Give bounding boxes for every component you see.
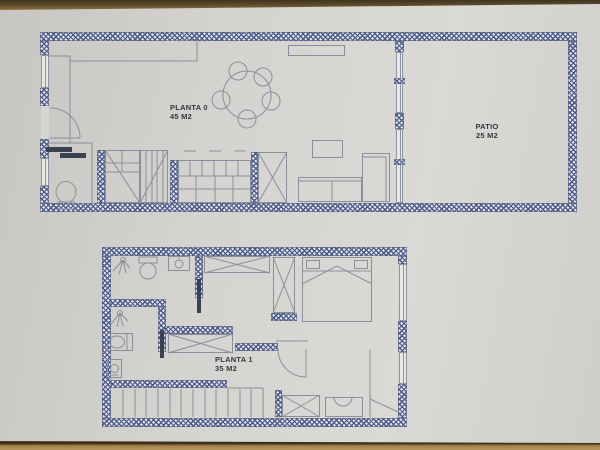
bedroom-door-icon [276,341,308,377]
window [41,158,49,186]
sofa-chaise [362,153,390,202]
pocket-door [160,330,164,358]
kitchen-wall-stub [251,152,258,203]
kitchen-wall-stub [170,160,178,203]
wall-left-seg [40,88,49,106]
wall-right-seg [398,384,407,418]
patio-name: PATIO [458,122,516,131]
bathtub [107,333,133,351]
bathroom-sliding-door [46,147,72,152]
wall-bottom [102,418,407,427]
wardrobe-x [168,334,233,353]
bathroom-sliding-door [60,153,86,158]
coffee-table [312,140,343,158]
planta0-area: 45 M2 [170,112,208,121]
washbasin-unit [168,256,190,271]
window [399,264,407,321]
plan-linework [0,0,600,450]
stair-tread-lines [123,388,263,418]
photo-of-floor-plan: { "plans": { "planta0": { "label": "PLAN… [0,0,600,450]
wardrobe-wall-cap [271,313,297,321]
patio-divider-wall-seg [395,41,404,52]
planta1-label: PLANTA 1 35 M2 [215,355,253,373]
closet-door-line [370,350,398,417]
wardrobe-x [273,257,295,313]
wardrobe-x [204,256,270,273]
small-sink [107,359,122,378]
wall-bottom [40,203,577,212]
entry-door-icon [50,108,80,138]
pillow [306,260,320,269]
glass-door-frame-tick [394,78,405,84]
planta1-area: 35 M2 [215,364,253,373]
floor-plan-sheet: PLANTA 0 45 M2 PATIO 25 M2 [0,0,600,450]
patio-area: 25 M2 [458,131,516,140]
pocket-door [197,279,201,313]
wall-left-seg [40,186,49,203]
toilet-icon [139,257,157,279]
sofa-seat [298,177,362,202]
patio-divider-wall-seg [395,113,404,129]
cabinet-wall-stub [275,390,282,417]
stair-wall [111,380,227,388]
window [399,352,407,384]
wall-top [102,247,407,256]
wardrobe-wall-cap [165,326,233,334]
wall-top [40,32,577,41]
patio-label: PATIO 25 M2 [458,122,516,140]
bathroom-wall [111,299,166,307]
planta0-name: PLANTA 0 [170,103,208,112]
cabinet-x [282,395,320,417]
hall-wall [235,343,278,351]
desk [325,397,363,417]
wall-right [568,41,577,203]
wall-left-seg [40,41,49,55]
glass-door-frame-tick [394,159,405,165]
patio-glass-door [396,129,403,203]
kitchen-tall-unit [258,152,287,203]
dining-table-icon [212,62,280,128]
planta1-name: PLANTA 1 [215,355,253,364]
planta0-label: PLANTA 0 45 M2 [170,103,208,121]
stair-wall-stub [97,150,105,203]
pillow [354,260,368,269]
stair-closet [105,150,140,203]
shower-head-icon [113,258,130,275]
wall-right-seg [398,256,407,264]
sideboard [288,45,345,56]
entry-door-opening [41,106,49,139]
shower-head-icon [111,311,128,328]
kitchen-counter [178,160,251,203]
wall-right-seg [398,321,407,352]
window [41,55,49,88]
stair-flight [140,150,168,203]
